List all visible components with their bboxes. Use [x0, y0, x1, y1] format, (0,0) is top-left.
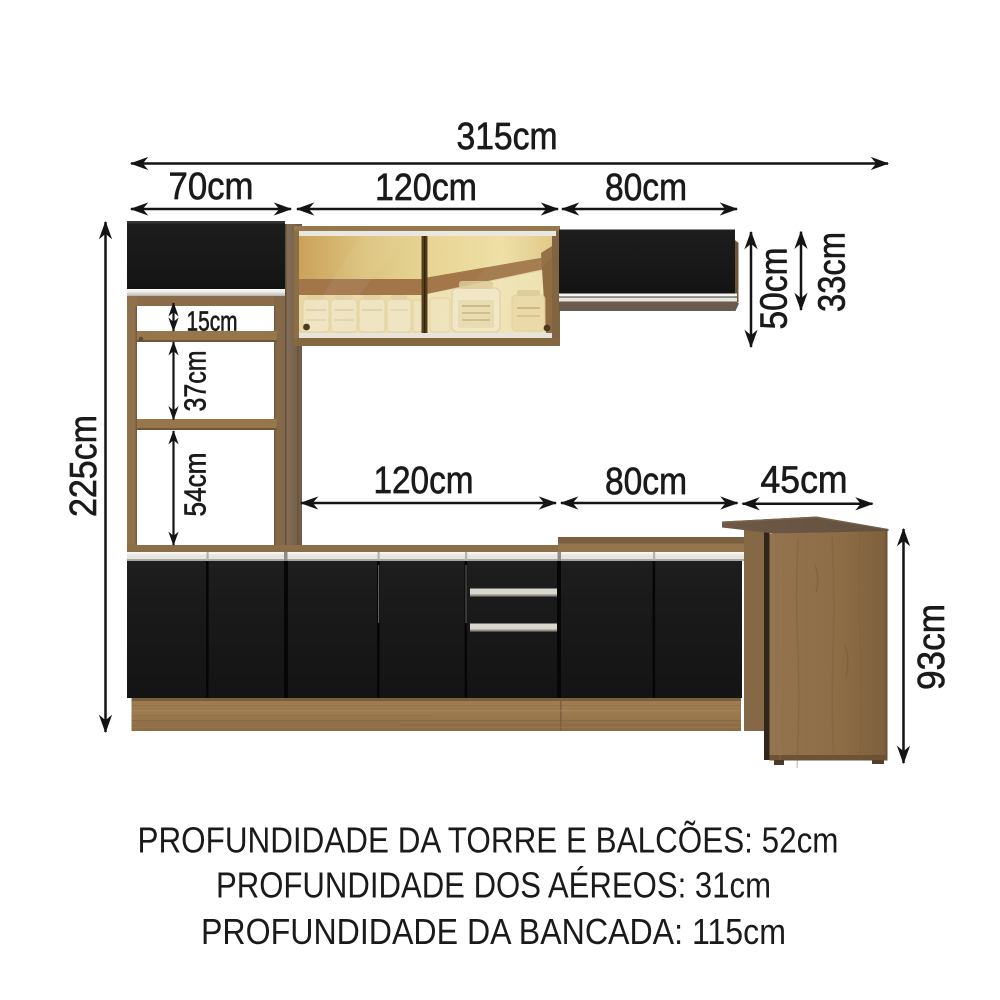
- svg-text:50cm: 50cm: [754, 248, 796, 330]
- svg-text:225cm: 225cm: [63, 415, 105, 517]
- svg-text:PROFUNDIDADE DA TORRE E BALCÕE: PROFUNDIDADE DA TORRE E BALCÕES: 52cm: [138, 820, 839, 861]
- svg-text:315cm: 315cm: [457, 116, 558, 158]
- svg-text:PROFUNDIDADE DOS AÉREOS: 31cm: PROFUNDIDADE DOS AÉREOS: 31cm: [216, 865, 771, 906]
- svg-text:80cm: 80cm: [605, 461, 687, 503]
- svg-text:PROFUNDIDADE DA BANCADA: 115cm: PROFUNDIDADE DA BANCADA: 115cm: [201, 911, 786, 952]
- svg-text:45cm: 45cm: [761, 460, 848, 502]
- svg-text:120cm: 120cm: [374, 460, 474, 502]
- svg-text:93cm: 93cm: [911, 604, 953, 690]
- svg-text:15cm: 15cm: [187, 306, 238, 337]
- svg-text:54cm: 54cm: [178, 453, 213, 517]
- svg-text:120cm: 120cm: [375, 167, 477, 209]
- svg-text:37cm: 37cm: [178, 351, 213, 412]
- svg-text:70cm: 70cm: [169, 166, 254, 208]
- svg-text:80cm: 80cm: [605, 167, 687, 209]
- svg-text:33cm: 33cm: [812, 232, 854, 312]
